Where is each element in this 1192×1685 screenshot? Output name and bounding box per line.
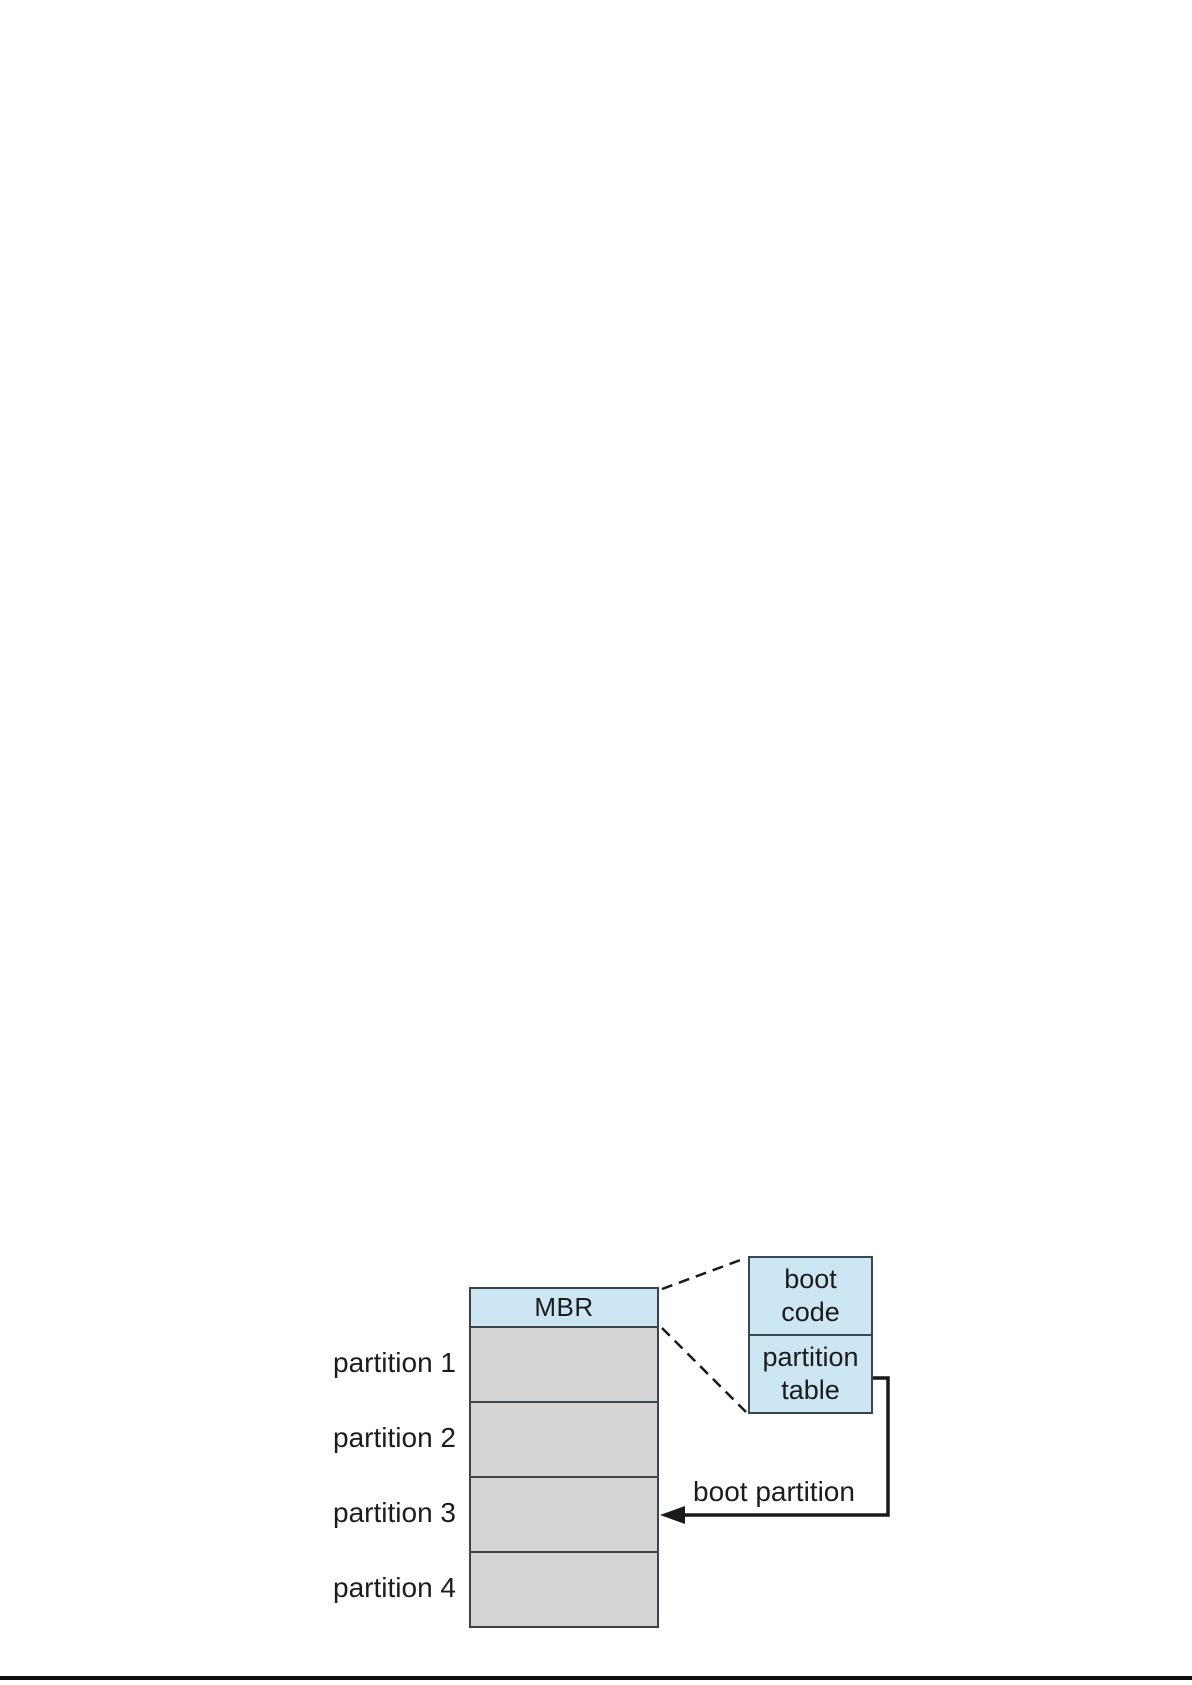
partition-1-label: partition 1 <box>250 1346 456 1380</box>
mbr-expansion-dashed-line-bottom <box>662 1328 746 1412</box>
boot-partition-label: boot partition <box>676 1476 872 1508</box>
partition-2-label: partition 2 <box>250 1421 456 1455</box>
disk-stack: MBR <box>469 1287 659 1628</box>
mbr-expansion-dashed-line-top <box>662 1258 746 1289</box>
boot-code-label-line2: code <box>781 1296 840 1329</box>
partition-table-label-line2: table <box>781 1374 840 1407</box>
mbr-detail-box: boot code partition table <box>748 1256 873 1414</box>
boot-code-label-line1: boot <box>784 1263 837 1296</box>
boot-code-cell: boot code <box>750 1258 871 1336</box>
partition-3-box <box>471 1478 657 1553</box>
mbr-box: MBR <box>471 1289 657 1328</box>
partition-table-cell: partition table <box>750 1336 871 1412</box>
mbr-label: MBR <box>534 1292 593 1323</box>
document-page: MBR partition 1 partition 2 partition 3 … <box>0 0 1192 1685</box>
partition-2-box <box>471 1403 657 1478</box>
partition-3-label: partition 3 <box>250 1496 456 1530</box>
partition-4-label: partition 4 <box>250 1571 456 1605</box>
partition-1-box <box>471 1328 657 1403</box>
boot-partition-arrowhead-icon <box>660 1506 685 1524</box>
partition-4-box <box>471 1553 657 1626</box>
page-bottom-rule <box>0 1676 1192 1680</box>
partition-table-label-line1: partition <box>762 1341 858 1374</box>
